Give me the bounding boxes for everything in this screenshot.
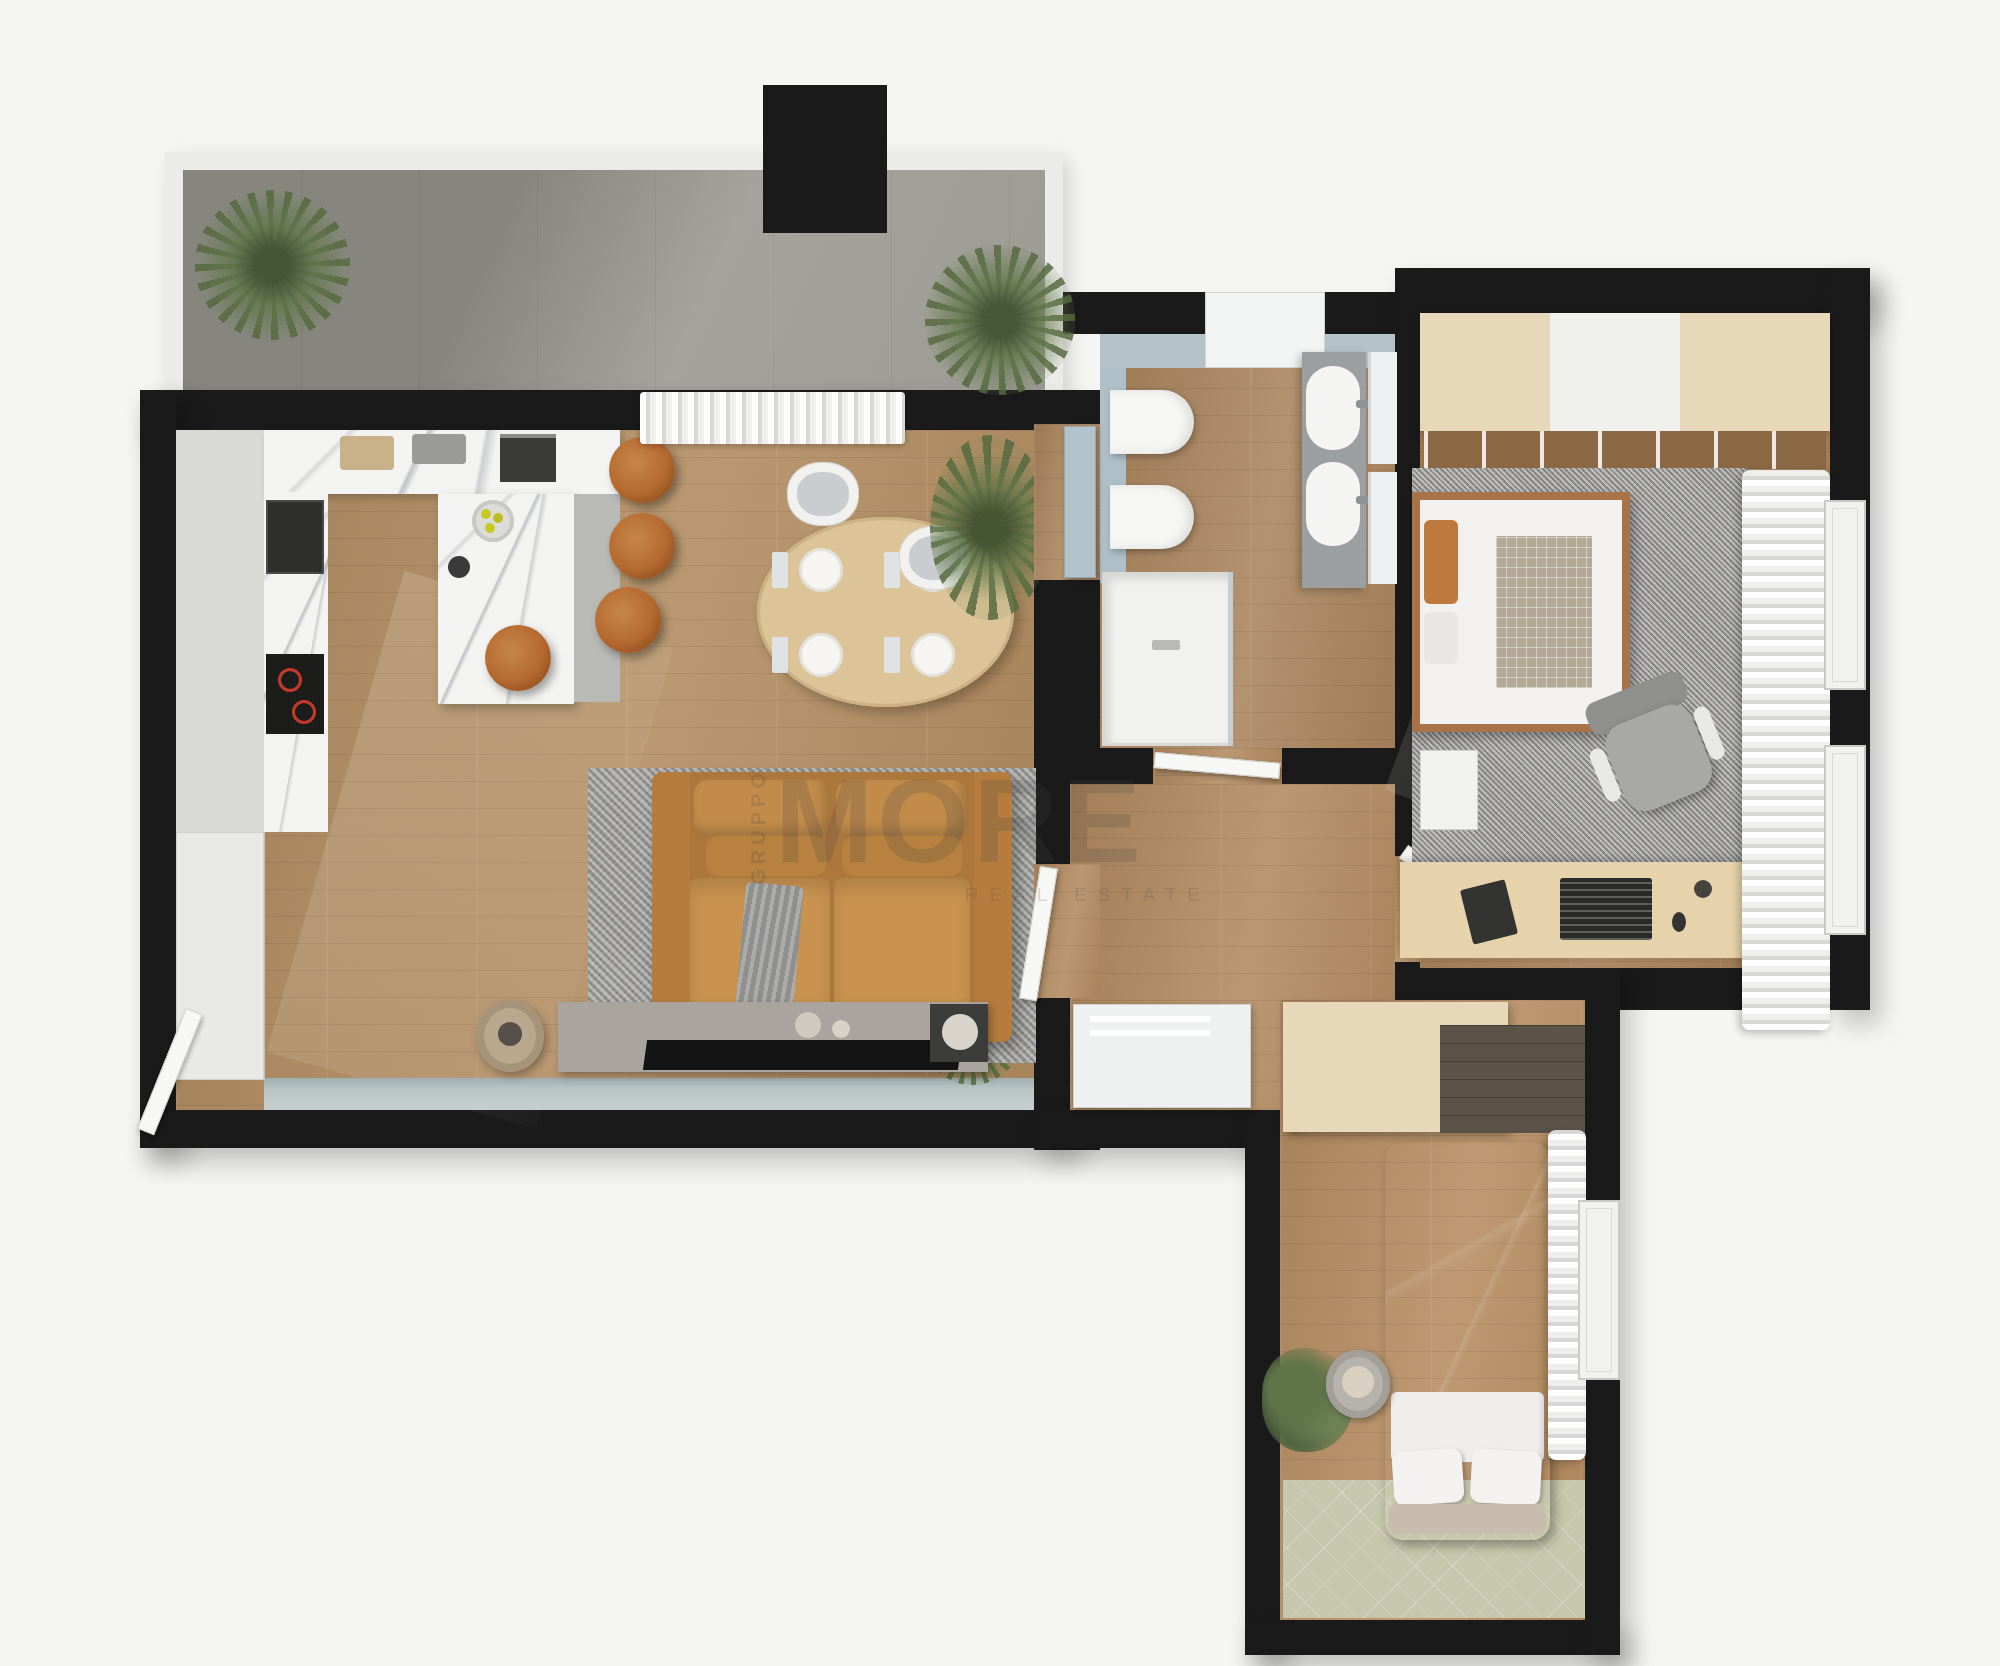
hall-sideboard-detail [1090,1016,1210,1022]
bed2-headboard [1389,1504,1546,1534]
bar-stool [609,437,675,503]
bed1-curtains [1742,470,1830,1030]
shower-glass [1228,572,1233,746]
bathroom-mirror [1368,352,1397,464]
lemons-icon [481,509,491,519]
sofa-back-cushion [836,780,968,838]
balcony-curtain [640,392,905,444]
bar-stool [595,587,661,653]
bed1-wardrobe-white-section [1550,313,1680,431]
wall-living-bottom [140,1110,1072,1148]
bed1-double-bed [1412,492,1630,732]
floorplan-render: GRUPPO MORE REAL ESTATE [0,0,2000,1666]
toilet-icon [1110,390,1194,454]
wall-hall-top-left [1065,748,1153,784]
sofa-lumbar-cushion [706,836,826,876]
bidet-icon [1110,485,1194,549]
bar-stool [609,513,675,579]
bed1-window [1824,745,1866,935]
tv-icon [643,1040,962,1070]
vanity-sink-icon [1306,366,1360,450]
bed1-wardrobe-rail [1424,431,1826,469]
side-table-vase-icon [498,1022,522,1046]
oven-icon [266,500,324,574]
wall-hall-top-right [1282,748,1395,784]
plate-icon [799,633,843,677]
napkin-icon [772,637,788,673]
bed1-blanket [1496,536,1592,688]
wall-hall-bottom [1034,1110,1280,1148]
bed2-pillow-icon [1391,1448,1465,1507]
wall-living-top [140,390,1072,430]
cutting-board-icon [340,436,394,470]
dining-chair [787,462,859,526]
napkin-icon [772,552,788,588]
bed1-pillow-icon [1424,612,1458,664]
bed2-window [1578,1200,1620,1380]
mouse-icon [1672,912,1686,932]
bar-stool [485,625,551,691]
bed1-pillow-icon [1424,520,1458,604]
wall-living-left [140,390,176,1148]
bed2-wardrobe-open-section [1440,1025,1585,1133]
wall-bedroom1-top [1395,268,1870,313]
utility-shaft-wall [763,85,887,233]
bed2-upholstered-bed [1385,1142,1550,1540]
decor-vase-icon [832,1020,850,1038]
laptop-icon [1560,878,1652,940]
bathroom-mirror [1368,472,1397,584]
plate-icon [799,548,843,592]
fruit-bowl-icon [472,500,514,542]
shower-drain-icon [1152,640,1180,650]
desk-cup-icon [1694,880,1712,898]
bed2-pillow-icon [1470,1448,1543,1506]
bed1-nightstand [1420,750,1478,830]
coffee-machine-icon [500,434,556,482]
napkin-icon [884,552,900,588]
toaster-icon [412,434,466,464]
bed1-window [1824,500,1866,690]
decor-vase-icon [795,1012,821,1038]
cooktop-icon [266,654,324,734]
balcony-plant-right-icon [925,245,1075,395]
sofa-lumbar-cushion [842,836,962,876]
napkin-icon [884,637,900,673]
balcony-plant-left-icon [195,190,350,340]
wall-bedroom2-bottom [1245,1620,1620,1655]
bathroom-door-leaf [1064,426,1096,578]
living-plant-top-icon [930,435,1050,620]
plate-icon [911,633,955,677]
cooktop-burner-icon [292,700,316,724]
cooktop-burner-icon [278,668,302,692]
shower-tray [1102,572,1232,746]
decor-round-vase-icon [942,1014,978,1050]
bed2-chair-cushion-icon [1342,1366,1374,1398]
sofa-back-cushion [694,780,830,838]
living-window-band [264,1078,1034,1110]
vanity-sink-icon [1306,462,1360,546]
island-decor-icon [448,556,470,578]
